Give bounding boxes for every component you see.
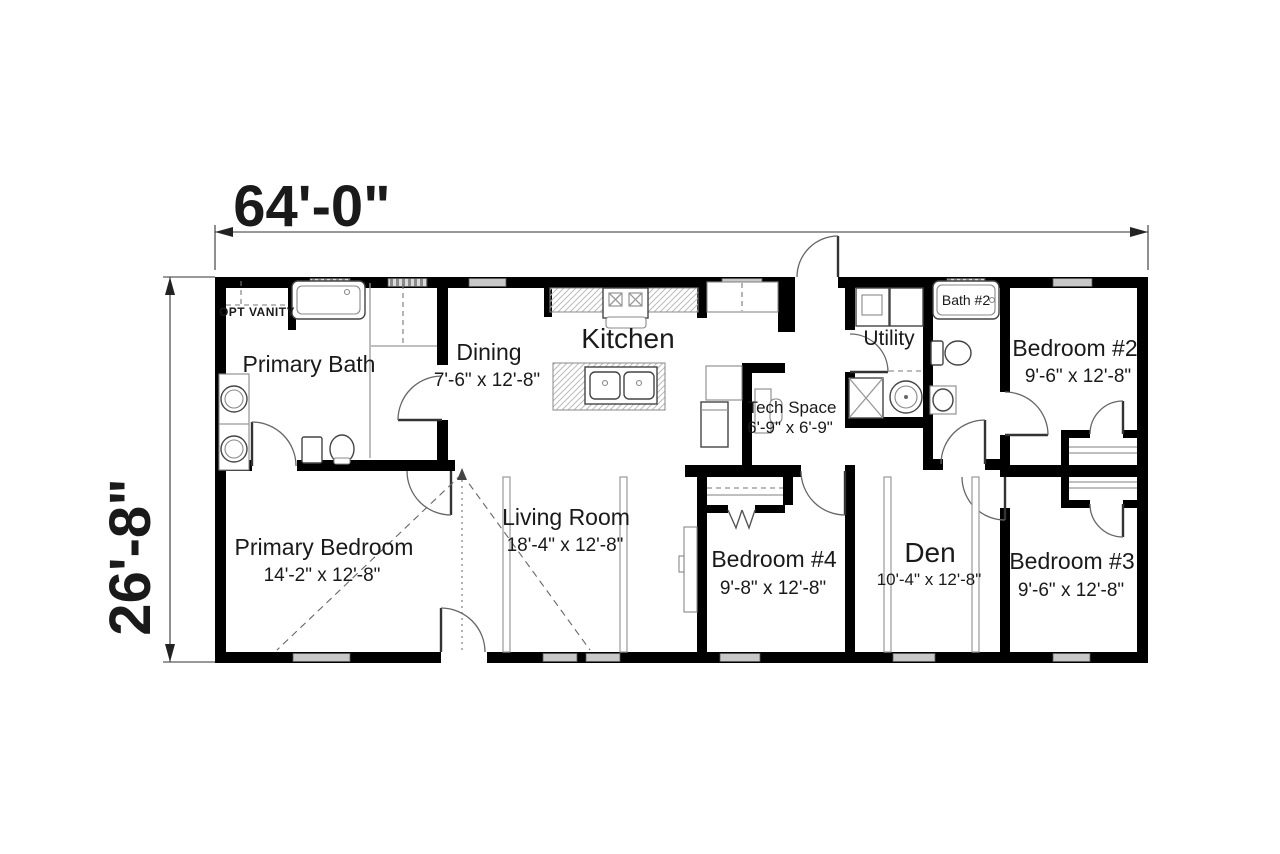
- wall-segment: [1000, 277, 1010, 392]
- room-dims-tech-space: 6'-9" x 6'-9": [747, 418, 833, 437]
- wall-segment: [697, 477, 707, 652]
- wall-segment: [437, 277, 448, 365]
- bedroom4-closet-shelving: [707, 488, 783, 495]
- wall-segment: [742, 363, 785, 373]
- primary-bath-sinks: [219, 374, 249, 470]
- wall-segment: [1123, 430, 1137, 438]
- stove: [603, 288, 648, 328]
- wall-segment: [845, 477, 855, 652]
- bedroom3-closet-door: [1090, 504, 1123, 537]
- refrigerator: [701, 402, 728, 447]
- labels: OPT VANITY Primary Bath Dining 7'-6" x 1…: [219, 292, 1138, 601]
- wall-segment: [1061, 430, 1090, 438]
- room-dims-bedroom4: 9'-8" x 12'-8": [720, 578, 826, 599]
- opt-vanity-label: OPT VANITY: [219, 305, 295, 319]
- wall-segment: [703, 505, 728, 513]
- arrow-left-icon: [215, 227, 233, 237]
- wall-segment: [685, 465, 801, 477]
- wall-segment: [845, 277, 855, 330]
- primary-bedroom-door: [407, 471, 451, 515]
- primary-bath-toilet: [302, 435, 354, 464]
- height-dimension-label: 26'-8": [98, 478, 163, 635]
- wall-segment: [923, 277, 933, 470]
- window: [469, 279, 506, 287]
- room-label-bath2: Bath #2: [942, 292, 990, 308]
- width-dimension-label: 64'-0": [233, 174, 390, 239]
- wall-segment: [778, 277, 795, 332]
- room-label-living-room: Living Room: [502, 504, 630, 530]
- bedroom3-closet-shelving: [1069, 482, 1137, 488]
- wall-segment: [985, 459, 1000, 470]
- room-label-tech-space: Tech Space: [748, 398, 837, 417]
- window: [388, 279, 427, 287]
- room-label-primary-bedroom: Primary Bedroom: [235, 534, 414, 560]
- room-label-primary-bath: Primary Bath: [243, 351, 376, 377]
- window: [293, 654, 350, 662]
- optional-wall-line: [884, 477, 891, 652]
- wall-segment: [1061, 500, 1090, 508]
- back-door: [797, 236, 838, 277]
- room-label-den: Den: [904, 537, 955, 568]
- window: [720, 654, 760, 662]
- walls: [215, 277, 1148, 663]
- water-heater: [849, 378, 883, 418]
- primary-bath-door: [252, 422, 296, 466]
- bedroom4-door: [801, 471, 845, 515]
- washer: [856, 288, 889, 326]
- arrow-down-icon: [165, 644, 175, 662]
- room-label-bedroom4: Bedroom #4: [711, 546, 837, 572]
- window: [893, 654, 935, 662]
- bedroom2-closet-door: [1090, 401, 1123, 434]
- wall-segment: [845, 465, 855, 477]
- wall-segment: [755, 505, 785, 513]
- room-dims-dining: 7'-6" x 12'-8": [434, 370, 540, 391]
- wall-segment: [783, 477, 793, 505]
- laundry-tub: [890, 381, 922, 413]
- primary-bath-tub: [292, 281, 365, 319]
- primary-closet-shelving: [370, 283, 437, 458]
- wall-segment: [1000, 508, 1010, 663]
- room-label-bedroom2: Bedroom #2: [1012, 335, 1137, 361]
- media-cabinet: [679, 527, 697, 612]
- bedroom3-door: [962, 477, 1005, 520]
- window: [543, 654, 577, 662]
- room-label-utility: Utility: [863, 327, 915, 350]
- bedroom2-closet-shelving: [1069, 447, 1137, 453]
- kitchen-cabinet: [706, 366, 742, 400]
- bedroom2-door: [1005, 392, 1048, 435]
- bath2-toilet: [931, 341, 971, 365]
- bath2-sink: [930, 386, 956, 414]
- dryer: [890, 288, 923, 326]
- room-label-dining: Dining: [456, 339, 521, 365]
- wall-segment: [1123, 500, 1137, 508]
- room-dims-bedroom2: 9'-6" x 12'-8": [1025, 366, 1131, 387]
- arrow-right-icon: [1130, 227, 1148, 237]
- window: [586, 654, 620, 662]
- room-label-kitchen: Kitchen: [581, 323, 674, 354]
- room-dims-den: 10'-4" x 12'-8": [877, 570, 982, 589]
- optional-wall-line: [972, 477, 979, 652]
- room-label-bedroom3: Bedroom #3: [1009, 548, 1134, 574]
- front-entry-door: [441, 608, 485, 652]
- window: [1053, 654, 1090, 662]
- room-dims-living-room: 18'-4" x 12'-8": [507, 535, 624, 556]
- bath2-door: [941, 420, 985, 464]
- room-dims-bedroom3: 9'-6" x 12'-8": [1018, 580, 1124, 601]
- pantry-shelving: [707, 282, 778, 312]
- floor-plan: 64'-0" 26'-8": [0, 0, 1280, 854]
- arrow-up-icon: [165, 277, 175, 295]
- bedroom4-closet-bifold-door: [728, 510, 755, 528]
- wall-segment: [1061, 430, 1069, 508]
- window: [1053, 279, 1092, 287]
- floor-plan-canvas: 64'-0" 26'-8": [0, 0, 1280, 854]
- kitchen-island: [553, 363, 665, 410]
- wall-segment: [1137, 277, 1148, 663]
- room-dims-primary-bedroom: 14'-2" x 12'-8": [264, 565, 381, 586]
